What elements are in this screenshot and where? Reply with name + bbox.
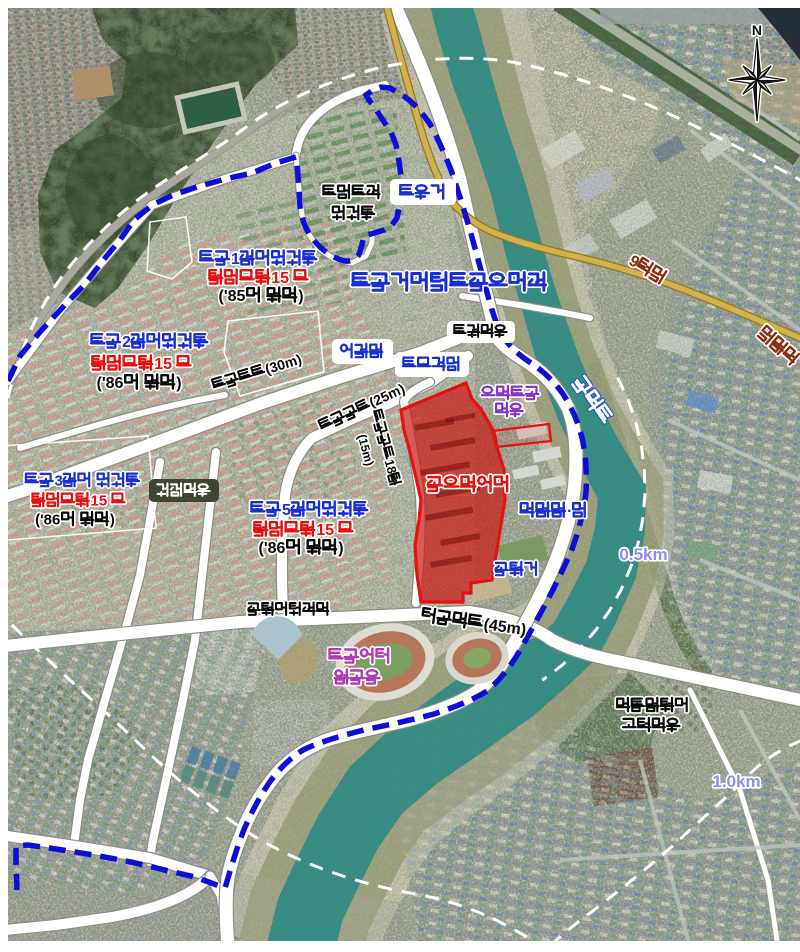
svg-text:2: 2 <box>122 334 131 351</box>
svg-text:15: 15 <box>271 270 289 287</box>
svg-text:1.0km: 1.0km <box>712 772 760 791</box>
svg-text:('86: ('86 <box>259 540 286 557</box>
svg-text:5: 5 <box>282 502 291 519</box>
svg-text:15: 15 <box>154 356 172 373</box>
svg-text:0.5km: 0.5km <box>619 545 667 564</box>
svg-text:15: 15 <box>91 492 108 509</box>
svg-text:1: 1 <box>231 251 240 268</box>
svg-text:): ) <box>338 540 343 557</box>
svg-text:): ) <box>298 288 303 305</box>
svg-text:('86: ('86 <box>35 511 60 528</box>
svg-text:3: 3 <box>55 472 63 489</box>
svg-text:): ) <box>110 511 115 528</box>
svg-text:·: · <box>567 503 572 520</box>
svg-text:): ) <box>176 375 181 392</box>
svg-text:('85: ('85 <box>219 288 246 305</box>
svg-text:N: N <box>752 22 762 38</box>
svg-text:('86: ('86 <box>97 375 124 392</box>
svg-text:15: 15 <box>316 522 334 539</box>
